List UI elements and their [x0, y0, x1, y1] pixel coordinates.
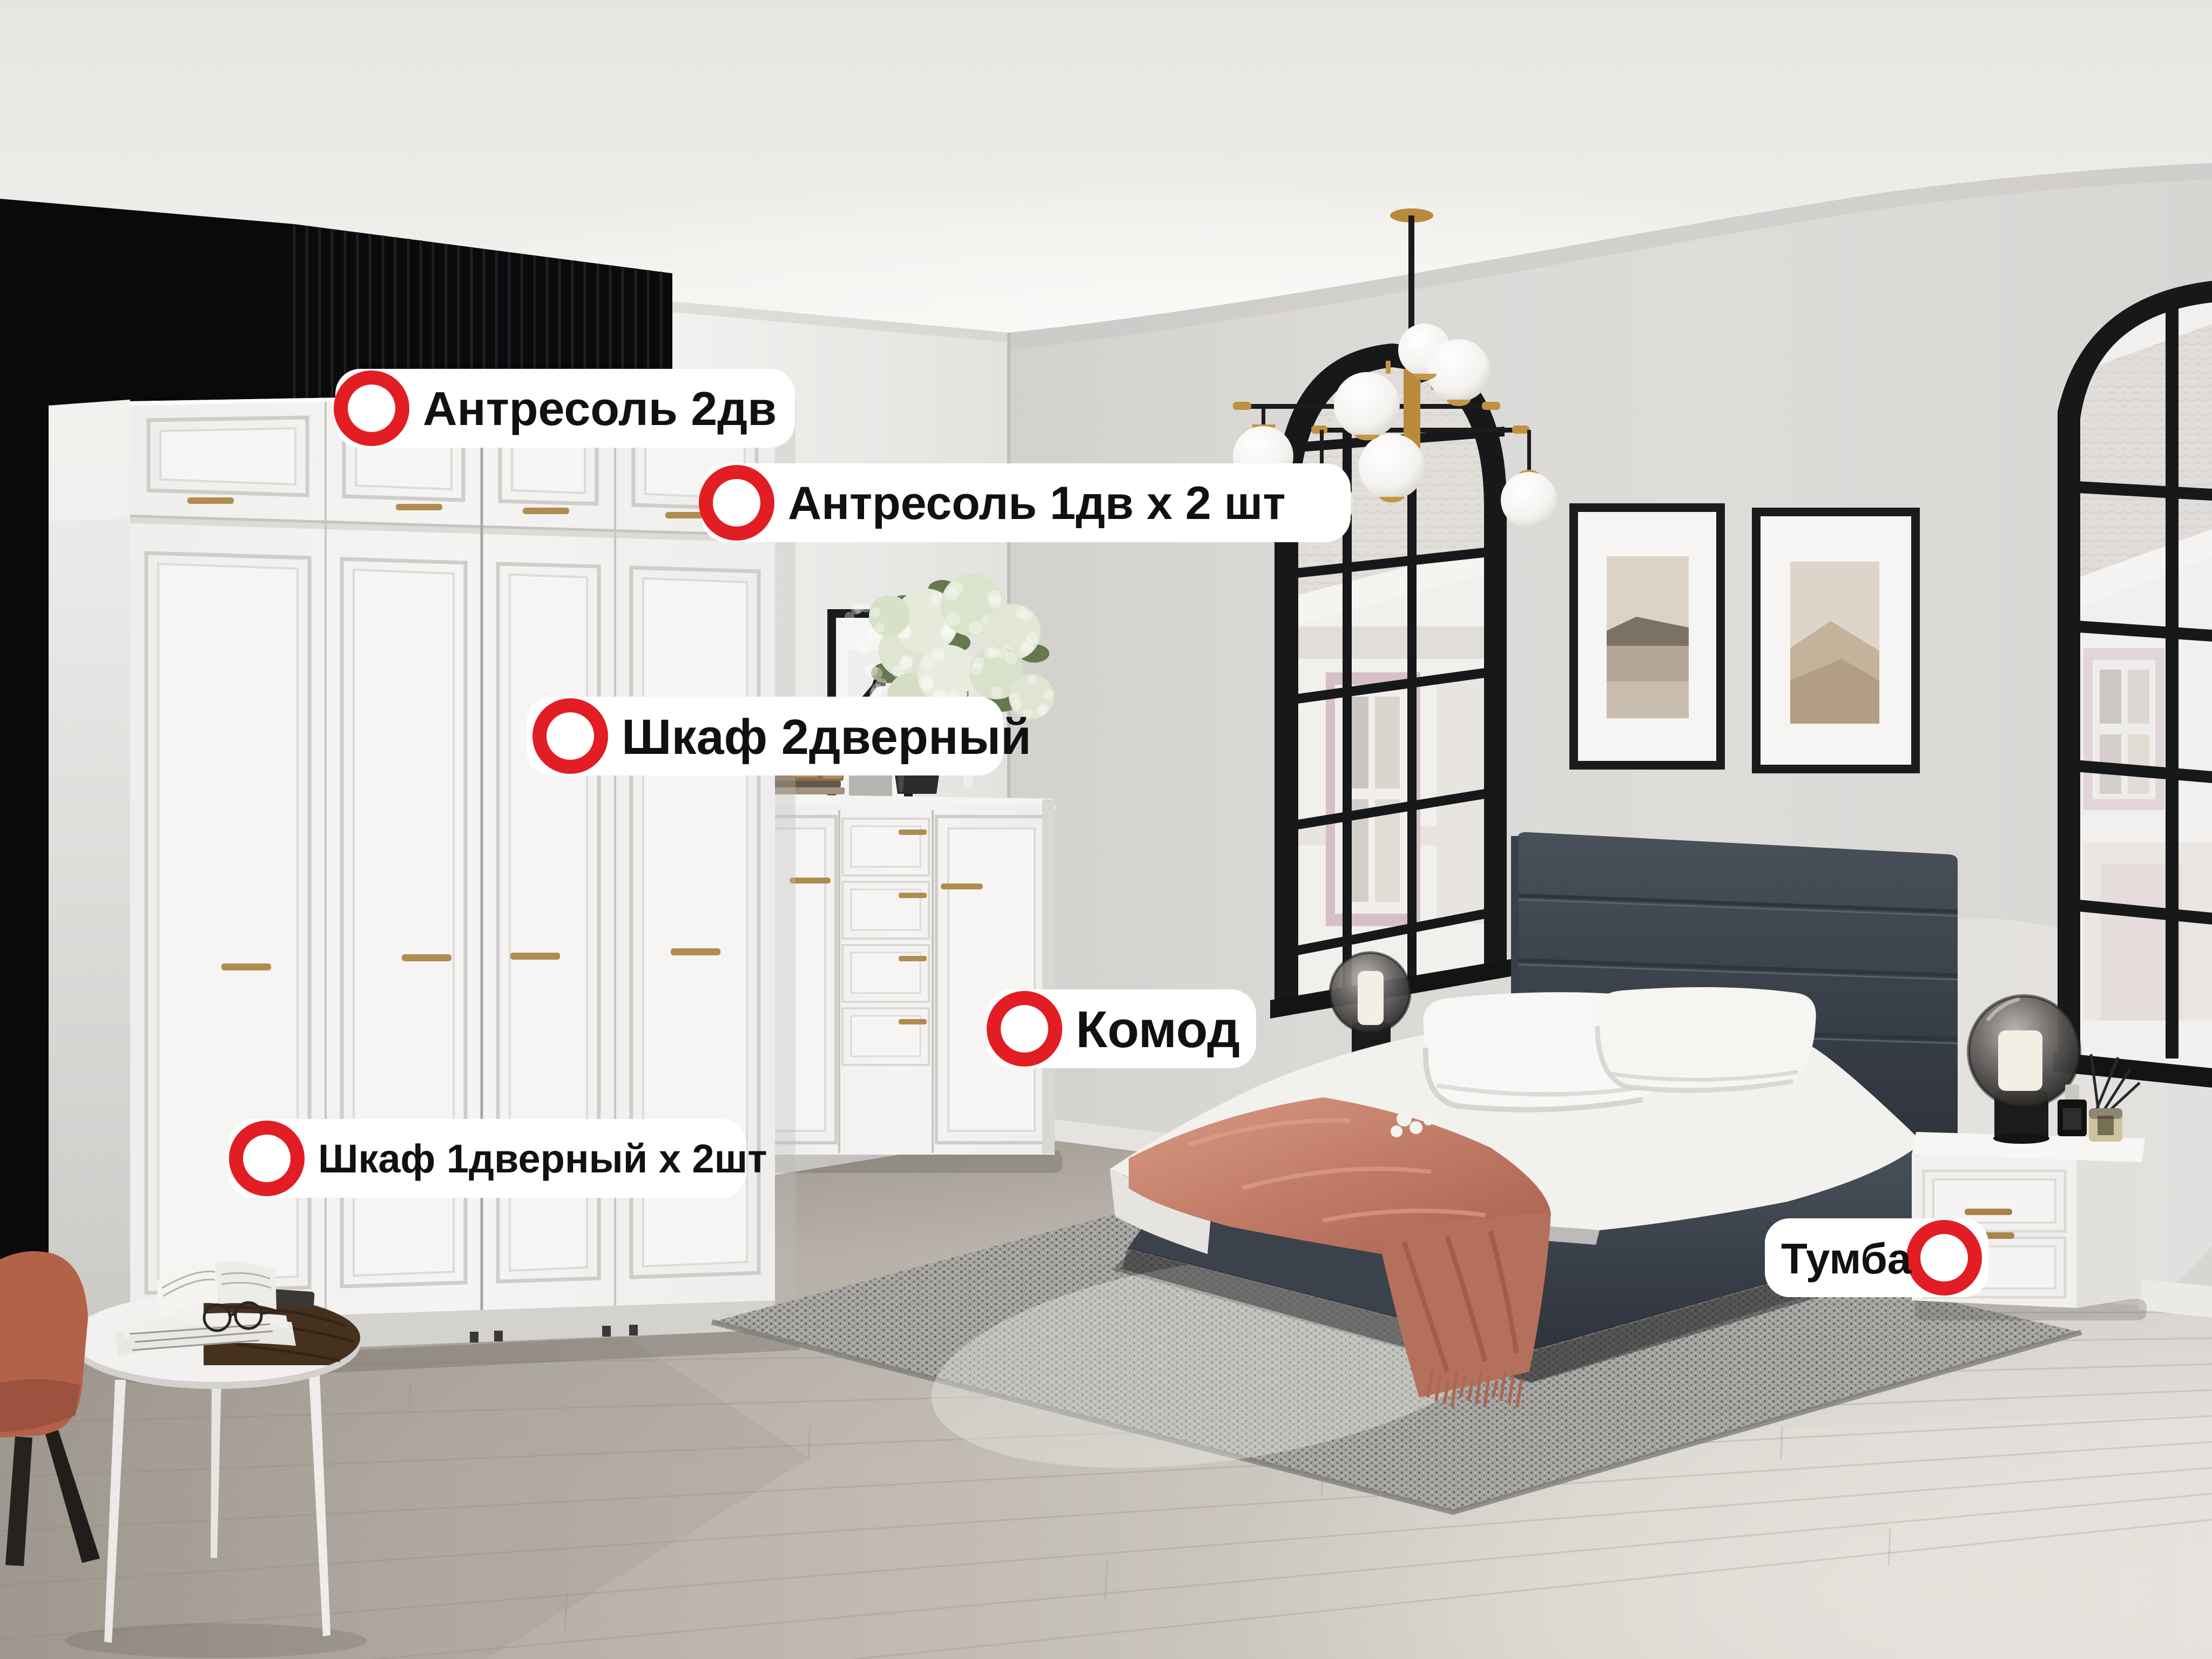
svg-text:Антресоль 2дв: Антресоль 2дв — [423, 382, 777, 435]
svg-text:Антресоль 1дв х 2 шт: Антресоль 1дв х 2 шт — [788, 477, 1285, 529]
svg-text:Тумба: Тумба — [1781, 1235, 1912, 1283]
svg-text:Комод: Комод — [1076, 1001, 1240, 1058]
svg-text:Шкаф 2дверный: Шкаф 2дверный — [622, 710, 1031, 765]
svg-text:Шкаф 1дверный х 2шт: Шкаф 1дверный х 2шт — [318, 1136, 767, 1181]
